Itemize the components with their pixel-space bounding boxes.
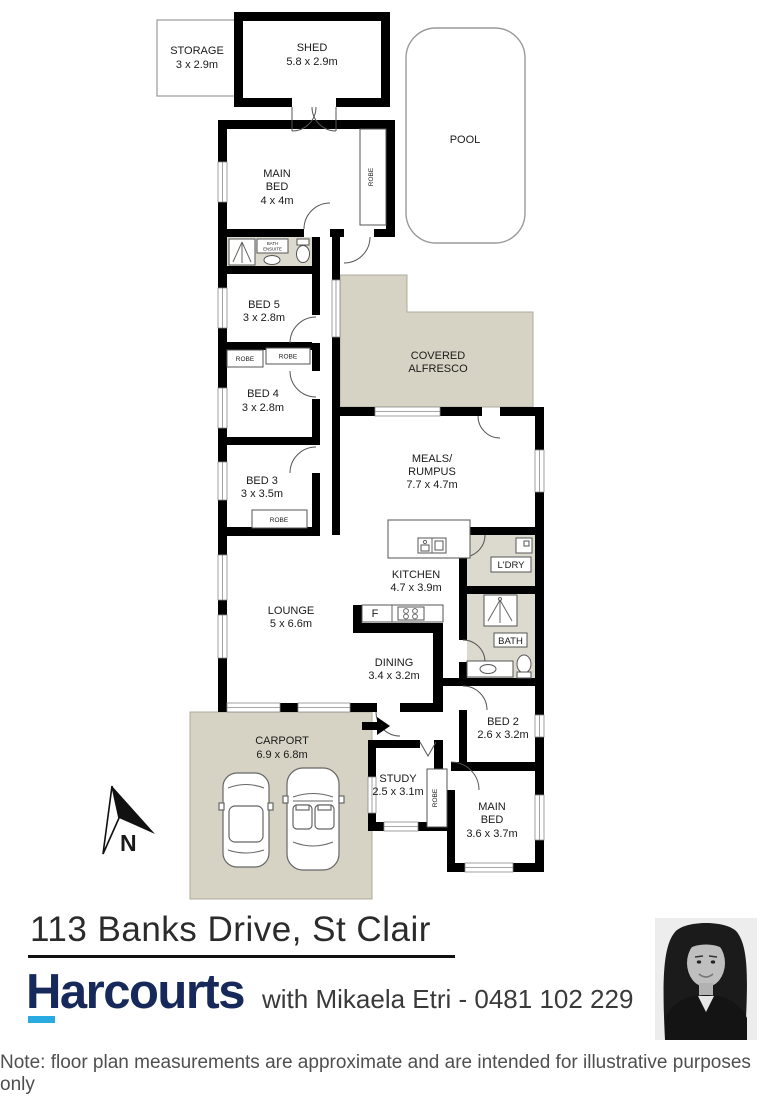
ensuite-label2: ENSUITE xyxy=(263,247,282,252)
room-label-carport: CARPORT xyxy=(255,735,309,747)
room-label-dining: DINING xyxy=(375,657,414,669)
room-dims-study: 2.5 x 3.1m xyxy=(372,786,423,798)
disclaimer-note: Note: floor plan measurements are approx… xyxy=(0,1052,756,1096)
harcourts-logo: Harcourts xyxy=(26,964,244,1020)
room-dims-dining: 3.4 x 3.2m xyxy=(368,670,419,682)
vanity-icon xyxy=(467,661,513,677)
room-dims-storage: 3 x 2.9m xyxy=(176,59,218,71)
room-dims-bed4: 3 x 2.8m xyxy=(242,402,284,414)
room-dims-main-bed-upper: 4 x 4m xyxy=(260,195,293,207)
kitchen-island xyxy=(388,520,470,558)
car-top-view-icon xyxy=(219,773,273,867)
property-address: 113 Banks Drive, St Clair xyxy=(28,910,455,958)
robe-label: ROBE xyxy=(368,167,375,186)
shower-icon xyxy=(229,239,255,265)
room-dims-meals: 7.7 x 4.7m xyxy=(406,479,457,491)
room-label-bed3: BED 3 xyxy=(246,475,278,487)
toilet-icon xyxy=(517,655,531,678)
room-label-meals2: RUMPUS xyxy=(408,466,456,478)
agent-contact-line: with Mikaela Etri - 0481 102 229 xyxy=(262,984,633,1015)
room-dims-bed2: 2.6 x 3.2m xyxy=(477,729,528,741)
storage-outline xyxy=(157,20,237,96)
fridge-label: F xyxy=(372,608,379,620)
room-label-main-bed-upper: MAIN xyxy=(263,168,291,180)
room-label-bed4: BED 4 xyxy=(247,388,279,400)
harcourts-logo-underline xyxy=(28,1016,55,1023)
room-label-meals1: MEALS/ xyxy=(412,453,453,465)
robe-label: ROBE xyxy=(236,356,255,363)
room-dims-bed3: 3 x 3.5m xyxy=(241,488,283,500)
basin-icon xyxy=(264,256,280,265)
washing-machine-icon-detail xyxy=(524,541,529,546)
robe-label: ROBE xyxy=(432,788,439,807)
room-label-kitchen: KITCHEN xyxy=(392,569,440,581)
compass-north-label: N xyxy=(120,830,137,856)
room-label-alfresco2: ALFRESCO xyxy=(408,363,468,375)
robe-label: ROBE xyxy=(279,354,298,361)
room-label-main-bed-upper2: BED xyxy=(266,181,289,193)
ensuite-label1: BATH xyxy=(267,241,278,246)
room-dims-shed: 5.8 x 2.9m xyxy=(286,56,337,68)
toilet-icon xyxy=(297,239,310,263)
car-top-view-icon xyxy=(283,768,344,870)
room-dims-lounge: 5 x 6.6m xyxy=(270,618,312,630)
robe-label: ROBE xyxy=(270,517,289,524)
room-label-lounge: LOUNGE xyxy=(268,605,314,617)
room-dims-main-bed-lower: 3.6 x 3.7m xyxy=(466,828,517,840)
room-label-laundry: L'DRY xyxy=(498,560,526,571)
branding-footer: 113 Banks Drive, St Clair Harcourts with… xyxy=(0,900,764,1080)
room-label-shed: SHED xyxy=(297,42,328,54)
alfresco-area xyxy=(340,275,533,407)
room-dims-kitchen: 4.7 x 3.9m xyxy=(390,582,441,594)
agent-photo xyxy=(655,918,757,1040)
bifold-door-mark xyxy=(420,742,436,756)
room-label-pool: POOL xyxy=(450,134,481,146)
room-label-alfresco1: COVERED xyxy=(411,350,465,362)
room-label-storage: STORAGE xyxy=(170,45,224,57)
room-label-bath: BATH xyxy=(498,636,523,647)
room-dims-carport: 6.9 x 6.8m xyxy=(256,749,307,761)
floor-plan-image: STORAGE 3 x 2.9m SHED 5.8 x 2.9m POOL MA… xyxy=(0,0,764,905)
room-label-main-bed-lower: MAIN xyxy=(478,801,506,813)
shower-icon xyxy=(484,595,517,626)
room-dims-bed5: 3 x 2.8m xyxy=(243,312,285,324)
room-label-study: STUDY xyxy=(379,773,417,785)
room-label-main-bed-lower2: BED xyxy=(481,814,504,826)
room-label-bed2: BED 2 xyxy=(487,716,519,728)
room-label-bed5: BED 5 xyxy=(248,299,280,311)
cooktop-icon xyxy=(398,607,424,620)
